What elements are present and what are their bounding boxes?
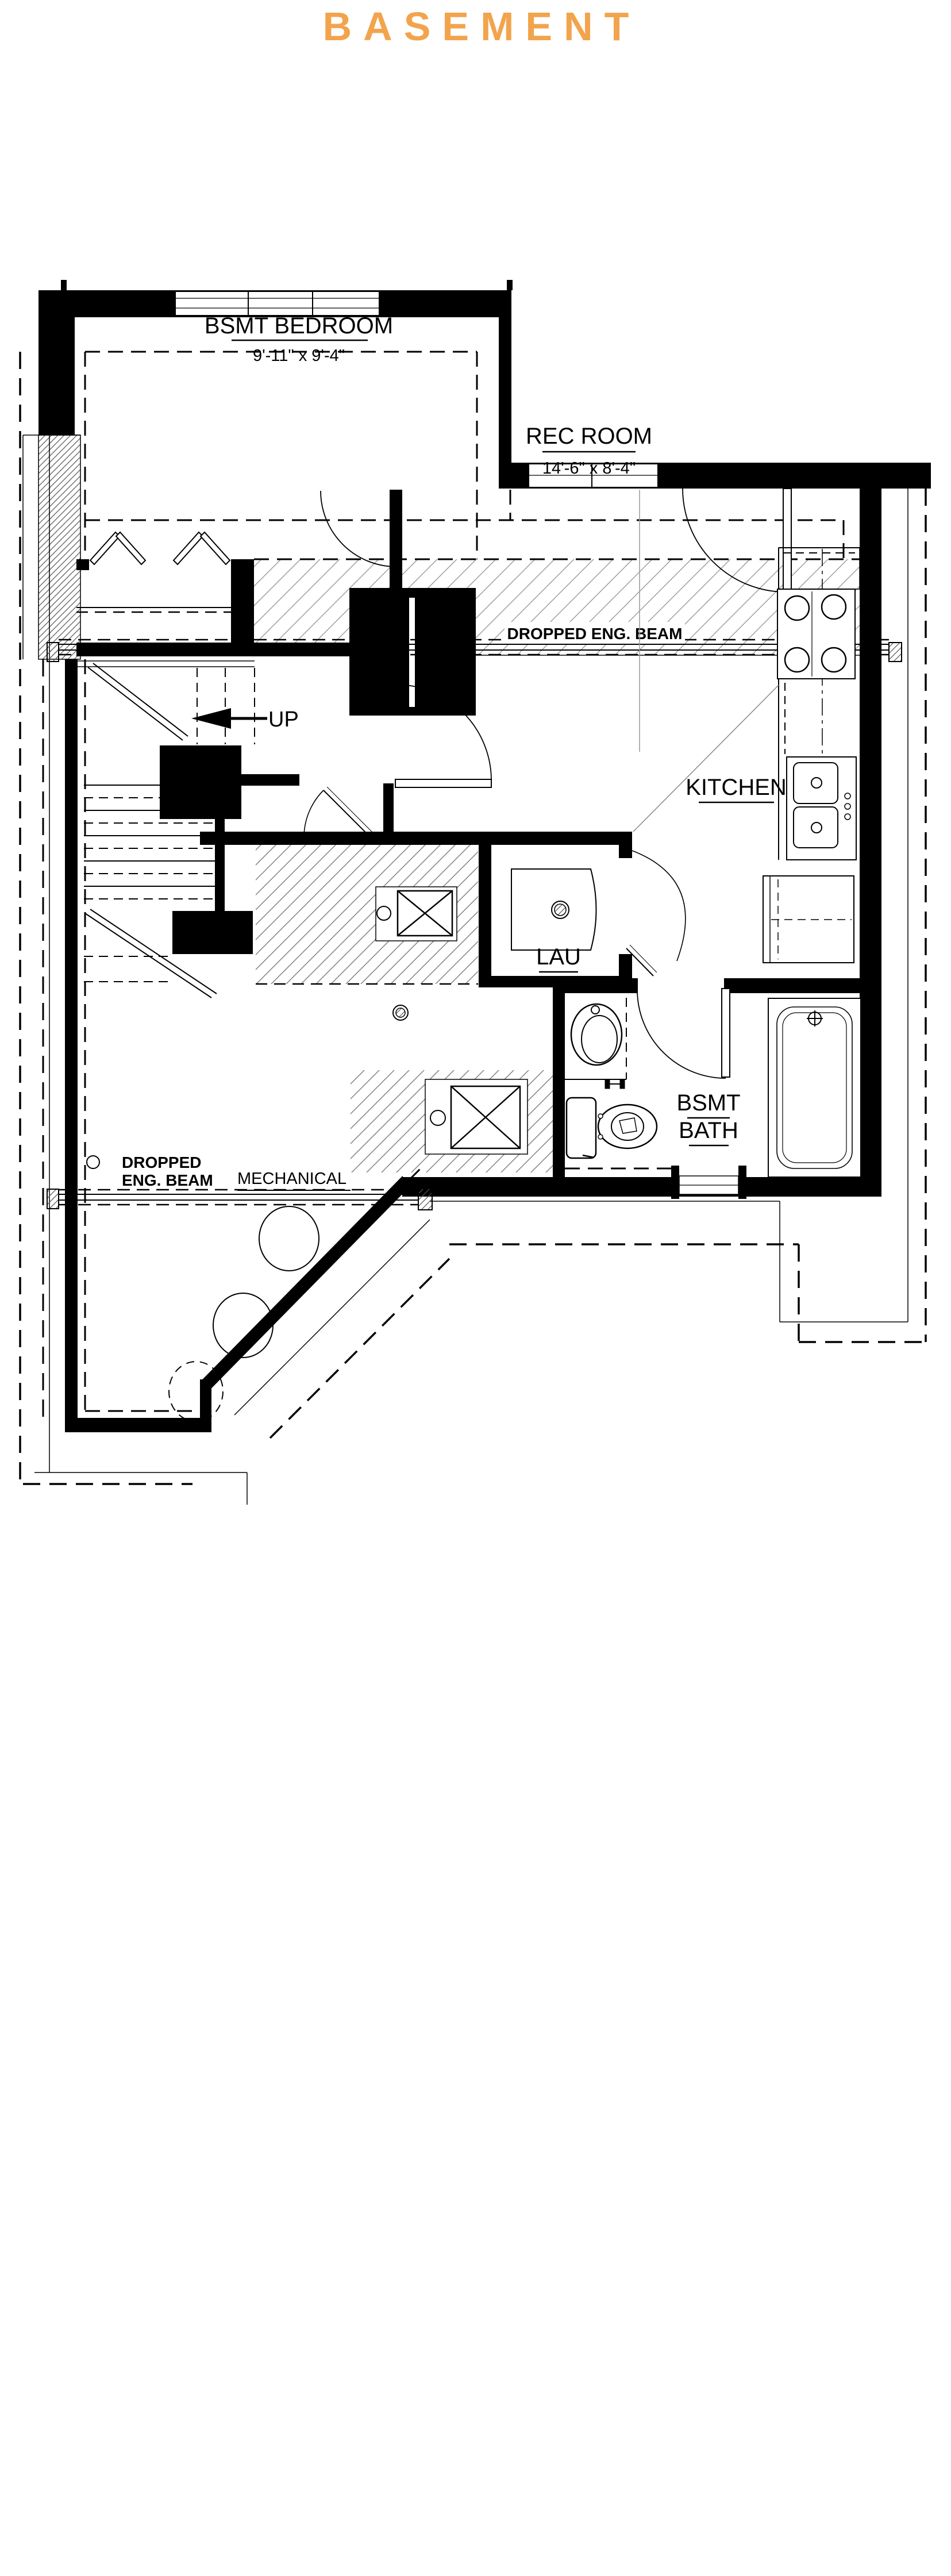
bathtub-icon xyxy=(768,998,861,1177)
up-arrow-icon xyxy=(191,708,267,729)
recroom-label: REC ROOM xyxy=(526,424,652,449)
beam-upper-label: DROPPED ENG. BEAM xyxy=(507,625,683,643)
window-bath xyxy=(671,1166,746,1199)
recroom-dims: 14'-6" x 8'-4" xyxy=(542,459,636,478)
toilet-icon xyxy=(567,1098,657,1158)
foundation-wall-left xyxy=(23,435,80,659)
water-tank-icon xyxy=(259,1206,319,1271)
door-laundry xyxy=(626,851,686,976)
floor-plan-page: BASEMENT xyxy=(0,0,951,2576)
laundry-label: LAU xyxy=(536,944,581,970)
fridge-icon xyxy=(763,876,854,963)
bedroom-dims: 9'-11" x 9'-4" xyxy=(253,347,345,365)
door-bedroom-rec xyxy=(321,491,396,567)
beam-anchor-icon xyxy=(47,1189,59,1209)
window-bedroom xyxy=(175,291,379,316)
kitchen-label: KITCHEN xyxy=(686,775,787,800)
oval-sink-icon xyxy=(571,1004,622,1065)
bath-label-line1: BSMT xyxy=(676,1090,740,1116)
recroom-label-group: REC ROOM 14'-6" x 8'-4" xyxy=(526,424,652,478)
hall-post-slit xyxy=(409,598,415,707)
page-title: BASEMENT xyxy=(323,4,641,49)
post-column-icon xyxy=(87,1156,99,1168)
diagonal-wall xyxy=(206,1181,407,1385)
door-stair-hall xyxy=(304,787,374,837)
beam-anchor-icon xyxy=(418,1189,432,1210)
mechanical-label: MECHANICAL xyxy=(237,1170,346,1188)
washer-icon xyxy=(511,869,596,950)
range-burners-icon xyxy=(777,589,855,679)
kitchen-boundary-line xyxy=(633,685,779,832)
laundry-label-group: LAU xyxy=(536,944,581,972)
double-sink-icon xyxy=(787,757,856,860)
floor-plan-svg: BASEMENT xyxy=(0,0,951,2576)
closet-bifold-doors xyxy=(90,532,230,564)
stairs-up-label: UP xyxy=(268,708,299,732)
shower-roughin-icon xyxy=(425,1079,528,1154)
bath-label-line2: BATH xyxy=(679,1118,738,1143)
closet-shelf-lines xyxy=(76,608,231,612)
future-tank-icon xyxy=(169,1362,223,1421)
bath-label-group: BSMT BATH xyxy=(676,1090,740,1145)
bedroom-label: BSMT BEDROOM xyxy=(205,313,393,339)
floor-drain-icon xyxy=(393,1005,408,1020)
beam-lower-label-line2: ENG. BEAM xyxy=(122,1171,213,1189)
kitchen-label-group: KITCHEN xyxy=(686,775,787,802)
beam-lower-label-line1: DROPPED xyxy=(122,1154,201,1171)
mechanical-tanks xyxy=(169,1206,319,1421)
bedroom-label-group: BSMT BEDROOM 9'-11" x 9'-4" xyxy=(205,313,393,365)
beam-anchor-icon xyxy=(889,643,902,662)
mechanical-label-group: MECHANICAL xyxy=(237,1170,351,1190)
door-bath xyxy=(637,989,730,1078)
shower-roughin-icon xyxy=(376,887,457,941)
beam-anchor-icon xyxy=(47,643,59,662)
